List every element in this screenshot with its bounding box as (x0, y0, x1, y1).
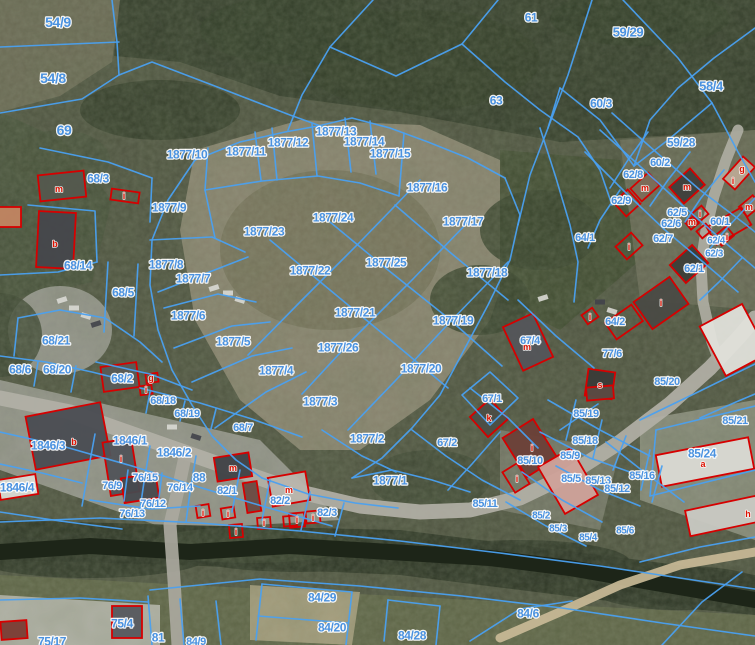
parcel-label: 67/1 (482, 393, 502, 405)
vehicle (167, 425, 177, 430)
parcel-label: 1877/25 (366, 255, 407, 269)
parcel-label: 62/4 (707, 236, 726, 247)
parcel-label: 1877/17 (443, 214, 484, 228)
parcel-label: 76/13 (119, 508, 145, 520)
parcel-label: 1846/3 (31, 438, 66, 452)
building-letter: m (285, 485, 293, 495)
parcel-label: 1877/7 (176, 271, 211, 285)
parcel-label: 75/17 (38, 634, 67, 645)
parcel-label: 68/3 (87, 171, 109, 185)
parcel-label: 1877/23 (244, 224, 285, 238)
parcel-label: 63 (490, 93, 503, 107)
building-letter: i (589, 312, 592, 322)
building-letter: m (745, 202, 753, 212)
vehicle (69, 306, 79, 311)
parcel-label: 76/14 (167, 482, 194, 494)
map-canvas: mibgimmmimiiiimsgikiibimmiiiiahii 54/954… (0, 0, 755, 645)
parcel-label: 75/4 (111, 616, 133, 630)
parcel-label: 82/3 (317, 507, 337, 519)
parcel-label: 68/14 (64, 258, 93, 272)
parcel-label: 62/1 (684, 263, 704, 275)
parcel-label: 1877/6 (171, 308, 206, 322)
parcel-label: 1877/18 (467, 265, 508, 279)
vehicle (595, 300, 605, 305)
parcel-label: 62/8 (623, 169, 643, 181)
parcel-label: 1877/4 (259, 363, 294, 377)
parcel-label: 59/28 (667, 135, 696, 149)
parcel-label: 1877/24 (313, 210, 354, 224)
building-letter: g (739, 164, 745, 174)
parcel-label: 82/1 (217, 485, 237, 497)
parcel-label: 60/2 (650, 157, 670, 169)
parcel-label: 69 (57, 122, 72, 138)
parcel-label: 62/9 (611, 195, 631, 207)
parcel-label: 84/28 (398, 628, 427, 642)
building-letter: i (227, 509, 230, 519)
building-letter: i (699, 209, 702, 219)
parcel-label: 84/29 (308, 590, 337, 604)
building-letter: i (726, 232, 729, 242)
parcel-label: 1846/4 (0, 480, 35, 494)
parcel-label: 1877/5 (216, 334, 251, 348)
parcel-label: 1877/10 (167, 147, 208, 161)
building-letter: b (71, 437, 77, 447)
parcel-label: 76/9 (102, 480, 122, 492)
parcel-label: 54/9 (45, 14, 71, 30)
parcel-label: 68/5 (112, 285, 134, 299)
parcel-label: 77/6 (602, 348, 622, 360)
parcel-label: 1877/22 (290, 263, 331, 277)
parcel-label: 85/9 (560, 450, 580, 462)
building-letter: h (745, 509, 751, 519)
parcel-label: 59/29 (613, 25, 644, 40)
building-letter: i (145, 385, 148, 395)
parcel-label: 1877/3 (303, 394, 338, 408)
parcel-label: 60/1 (710, 216, 730, 228)
parcel-label: 85/2 (532, 511, 551, 522)
parcel-label: 68/18 (150, 395, 176, 407)
parcel-label: 1877/2 (350, 431, 385, 445)
parcel-label: 84/20 (318, 620, 347, 634)
building-letter: g (148, 373, 154, 383)
parcel-label: 1846/1 (113, 433, 148, 447)
parcel-label: 1877/12 (268, 135, 309, 149)
parcel-label: 1877/26 (318, 340, 359, 354)
building-letter: m (55, 184, 63, 194)
parcel-label: 76/15 (132, 472, 158, 484)
building-letter: m (229, 463, 237, 473)
parcel-label: 67/2 (437, 437, 457, 449)
parcel-label: 1877/19 (433, 313, 474, 327)
building-letter: i (263, 518, 266, 528)
parcel-label: 85/5 (561, 473, 581, 485)
building-letter: i (235, 527, 238, 537)
building-letter: i (732, 176, 735, 186)
parcel-label: 1877/21 (335, 305, 376, 319)
parcel-label: 62/3 (705, 249, 724, 260)
building-letter: i (531, 443, 534, 453)
parcel-label: 85/3 (549, 524, 568, 535)
building-letter: i (120, 454, 123, 464)
parcel-label: 64/1 (575, 232, 595, 244)
parcel-label: 61 (525, 10, 538, 24)
building-letter: m (688, 217, 696, 227)
building-letter: i (312, 513, 315, 523)
parcel-label: 85/4 (579, 533, 598, 544)
parcel-label: 1877/11 (226, 144, 267, 158)
building-letter: i (660, 298, 663, 308)
parcel-label: 68/7 (233, 422, 253, 434)
parcel-label: 64/2 (605, 316, 625, 328)
building-letter: m (641, 183, 649, 193)
building-letter: i (296, 515, 299, 525)
parcel-label: 67/4 (520, 335, 541, 347)
parcel-label: 1846/2 (157, 445, 192, 459)
parcel-label: 68/19 (174, 408, 200, 420)
parcel-label: 85/18 (572, 435, 598, 447)
parcel-label: 1877/15 (370, 146, 411, 160)
parcel-label: 85/16 (629, 470, 655, 482)
parcel-label: 62/7 (653, 233, 673, 245)
parcel-label: 68/2 (111, 371, 133, 385)
building-outline (0, 207, 21, 227)
parcel-label: 85/10 (517, 455, 543, 467)
parcel-label: 82/2 (270, 495, 290, 507)
parcel-label: 1877/16 (407, 180, 448, 194)
parcel-label: 1877/20 (401, 361, 442, 375)
parcel-label: 1877/9 (152, 200, 187, 214)
parcel-label: 84/9 (186, 636, 206, 645)
parcel-label: 68/6 (9, 362, 31, 376)
parcel-label: 85/6 (616, 526, 635, 537)
parcel-label: 85/12 (604, 483, 630, 495)
parcel-label: 1877/8 (149, 257, 184, 271)
parcel-label: 81 (152, 630, 165, 644)
building-letter: i (628, 242, 631, 252)
parcel-label: 68/21 (42, 333, 71, 347)
parcel-label: 85/21 (722, 415, 748, 427)
parcel-label: 58/4 (699, 79, 724, 94)
parcel-label: 85/20 (654, 376, 680, 388)
building-letter: m (683, 182, 691, 192)
building-outline (0, 620, 27, 640)
parcel-label: 54/8 (40, 70, 66, 86)
building-letter: b (52, 239, 58, 249)
parcel-label: 62/6 (661, 218, 681, 230)
building-letter: i (123, 191, 126, 201)
building-letter: i (202, 508, 205, 518)
parcel-label: 85/11 (473, 498, 498, 510)
parcel-label: 84/6 (517, 606, 539, 620)
parcel-label: 85/24 (688, 446, 717, 460)
building-letter: i (516, 474, 519, 484)
building-letter: s (597, 380, 602, 390)
parcel-label: 60/3 (590, 96, 612, 110)
parcel-label: 68/20 (43, 362, 72, 376)
map-viewport[interactable]: mibgimmmimiiiimsgikiibimmiiiiahii 54/954… (0, 0, 755, 645)
parcel-label: 85/19 (573, 408, 599, 420)
parcel-label: 1877/1 (373, 473, 408, 487)
parcel-label: 88 (193, 470, 206, 484)
